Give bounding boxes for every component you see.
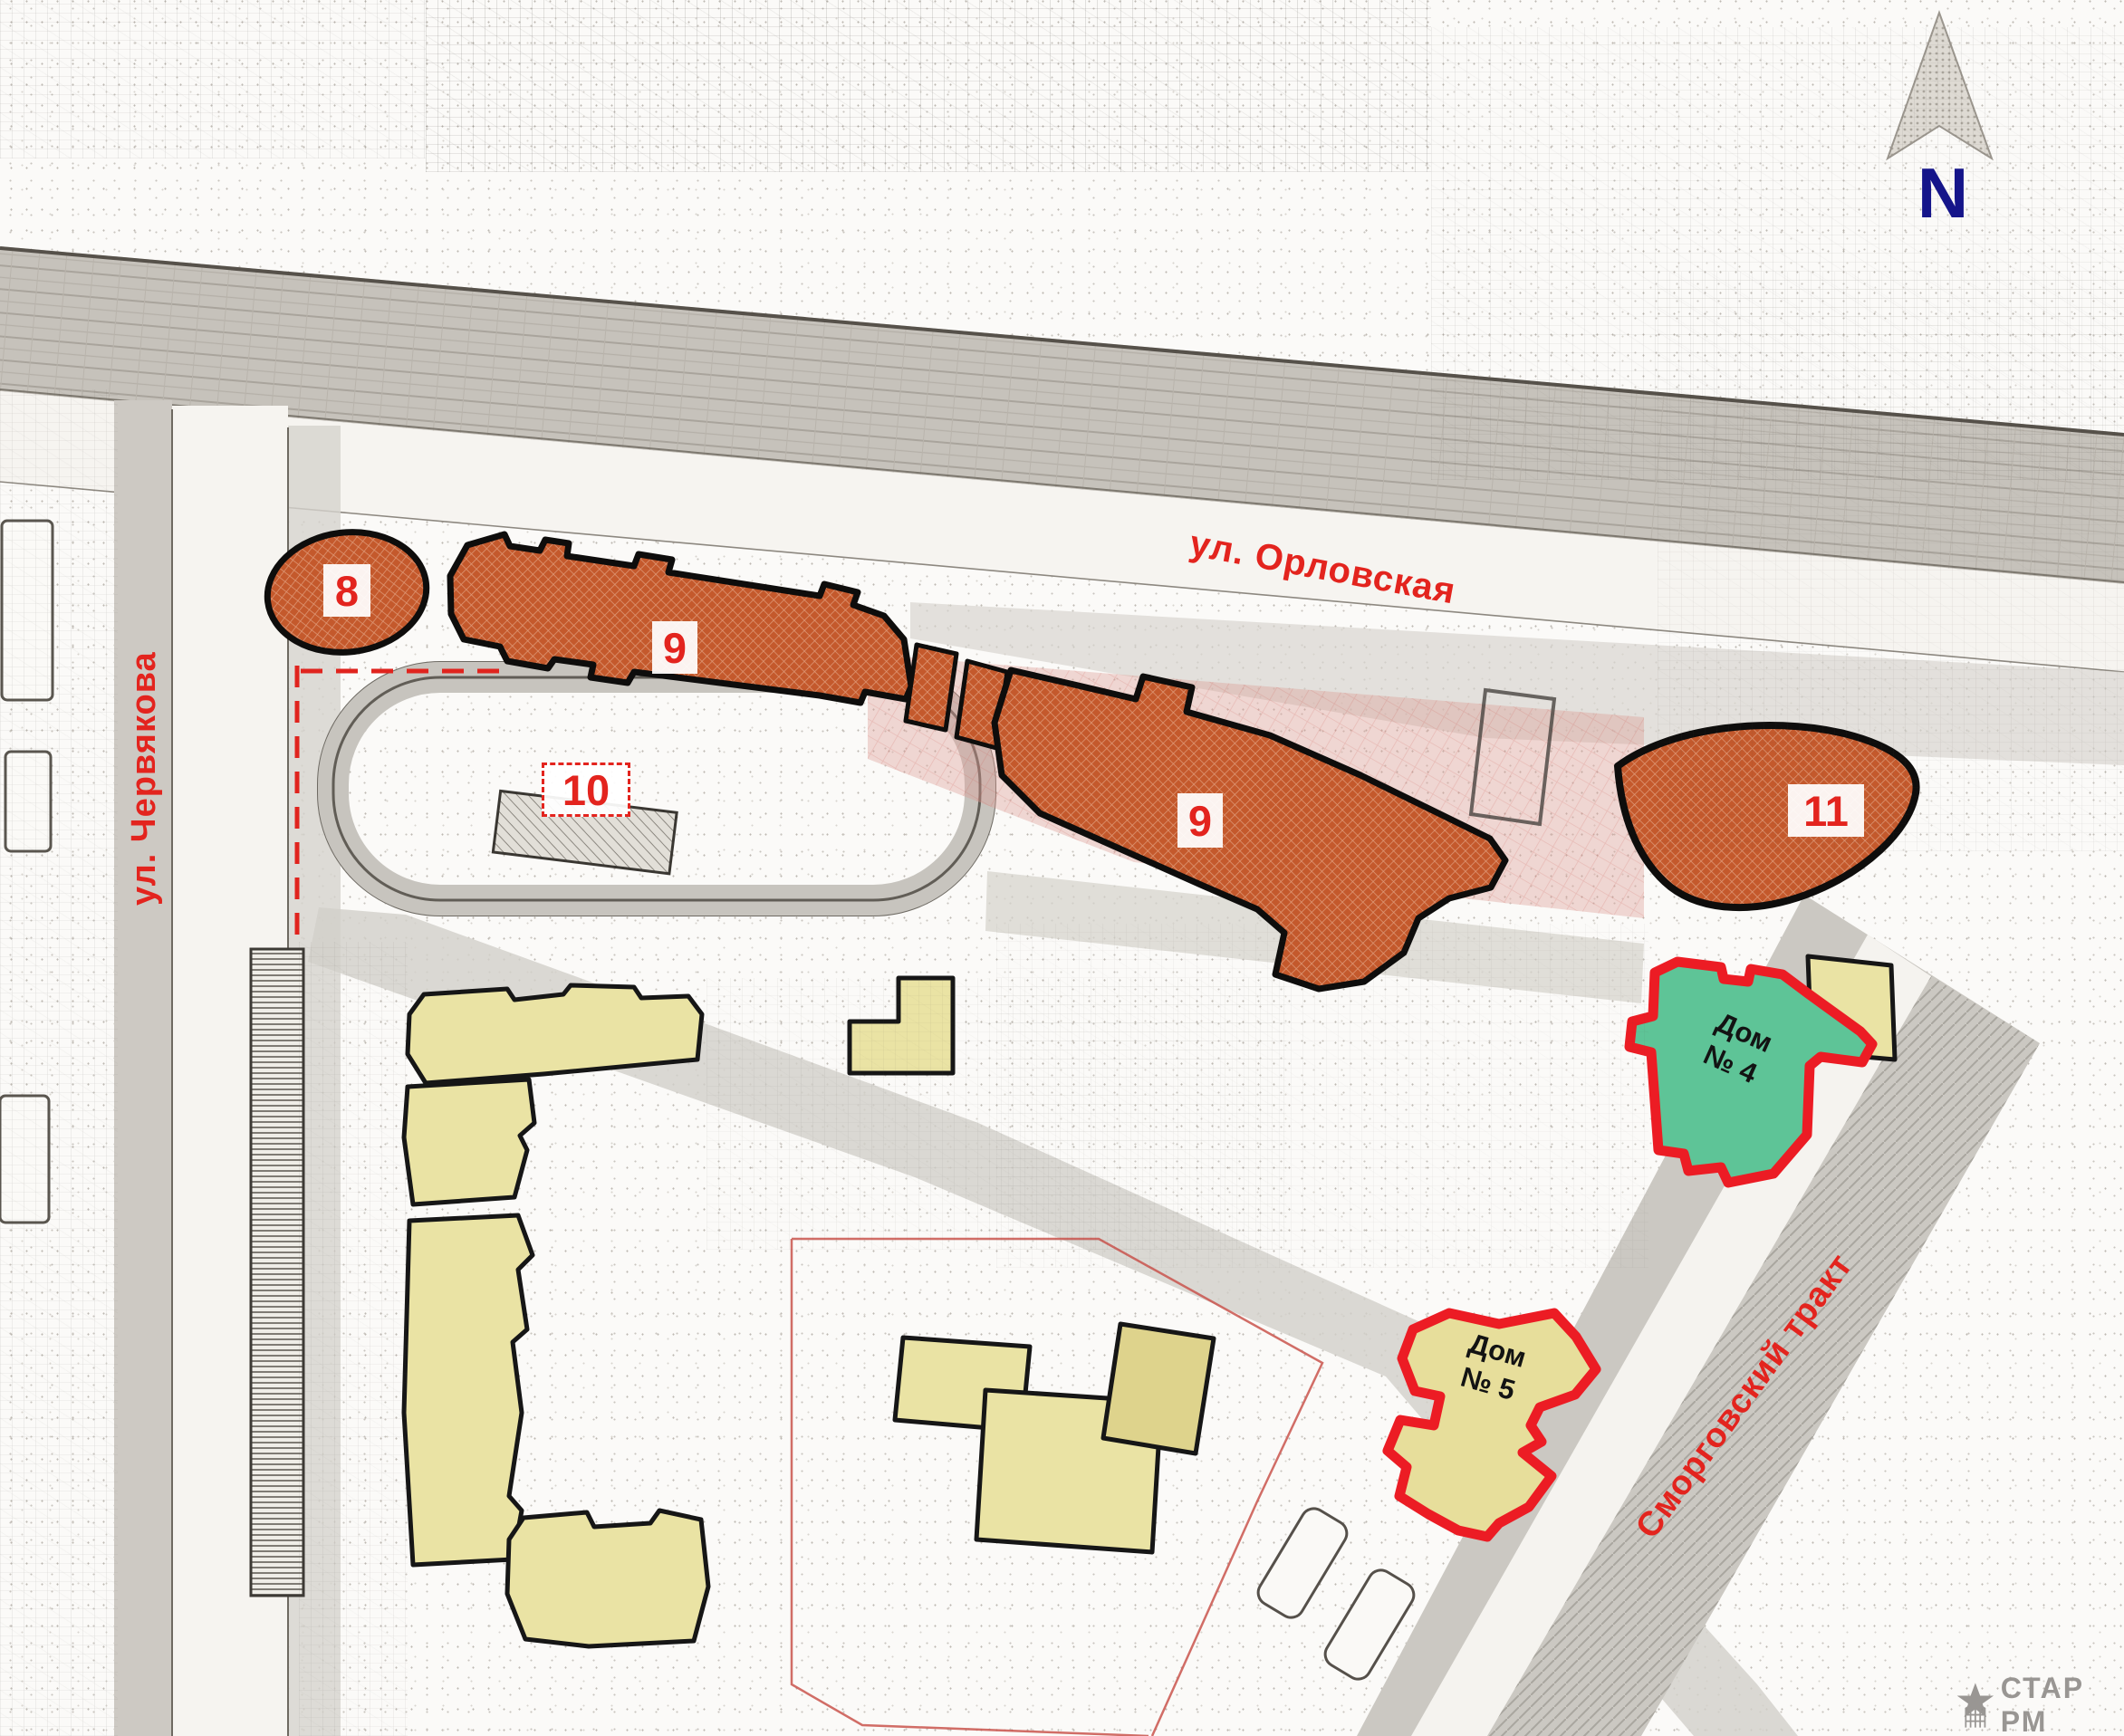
plot-number: 11 (1803, 786, 1849, 836)
plot-9-connector-a (906, 645, 956, 730)
roadside-buildings (1254, 1504, 1418, 1684)
north-letter: N (1907, 152, 1979, 235)
north-arrow-icon (1888, 13, 1992, 158)
plot-label-9-west: 9 (652, 621, 697, 674)
long-hatched-building (251, 949, 303, 1596)
site-plan-map: ул. Орловская ул. Червякова Сморговский … (0, 0, 2124, 1736)
plot-11-building (1618, 725, 1917, 907)
plot-label-9-east: 9 (1177, 793, 1223, 848)
existing-building-l-shape (850, 978, 953, 1073)
existing-building-c-left-upper (404, 1079, 534, 1204)
watermark-text: СТАР РМ (2001, 1672, 2124, 1736)
plot-number: 9 (663, 623, 687, 673)
site-plan-svg (0, 0, 2124, 1736)
star-logo-icon (1955, 1678, 1996, 1732)
watermark: СТАР РМ (1955, 1672, 2124, 1736)
plot-label-11: 11 (1788, 784, 1864, 837)
plot-label-8: 8 (323, 564, 370, 617)
plot-number: 8 (335, 566, 359, 616)
street-label-chervyakova: ул. Червякова (125, 651, 164, 906)
plot-number: 9 (1188, 796, 1212, 846)
existing-building-c-bottom (507, 1511, 708, 1646)
plot-label-10: 10 (542, 762, 630, 817)
existing-building-p3 (1103, 1324, 1214, 1453)
existing-building-c-left-lower (404, 1215, 533, 1565)
plot-number: 10 (562, 765, 610, 815)
left-edge-buildings (0, 521, 53, 1223)
